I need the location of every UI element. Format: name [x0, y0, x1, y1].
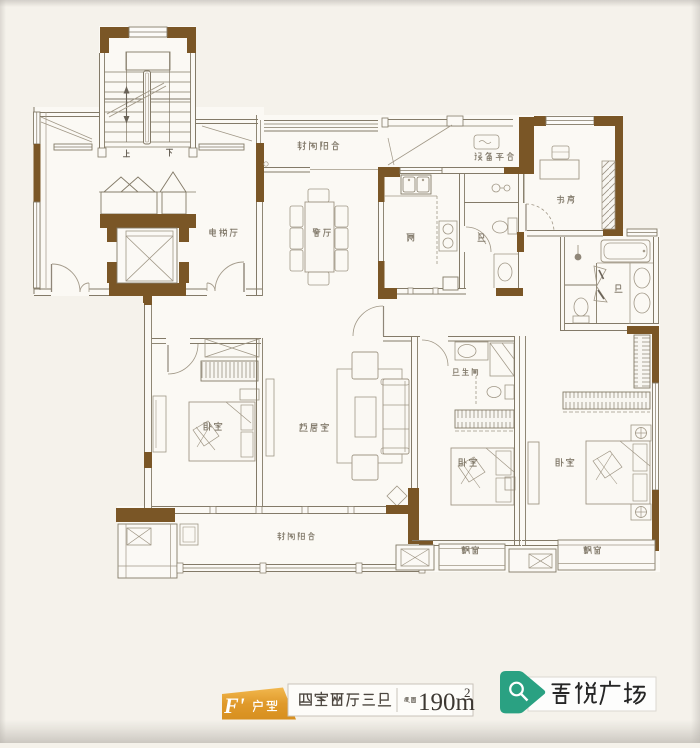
svg-text:F': F' [223, 693, 245, 718]
svg-text:2: 2 [464, 685, 471, 700]
